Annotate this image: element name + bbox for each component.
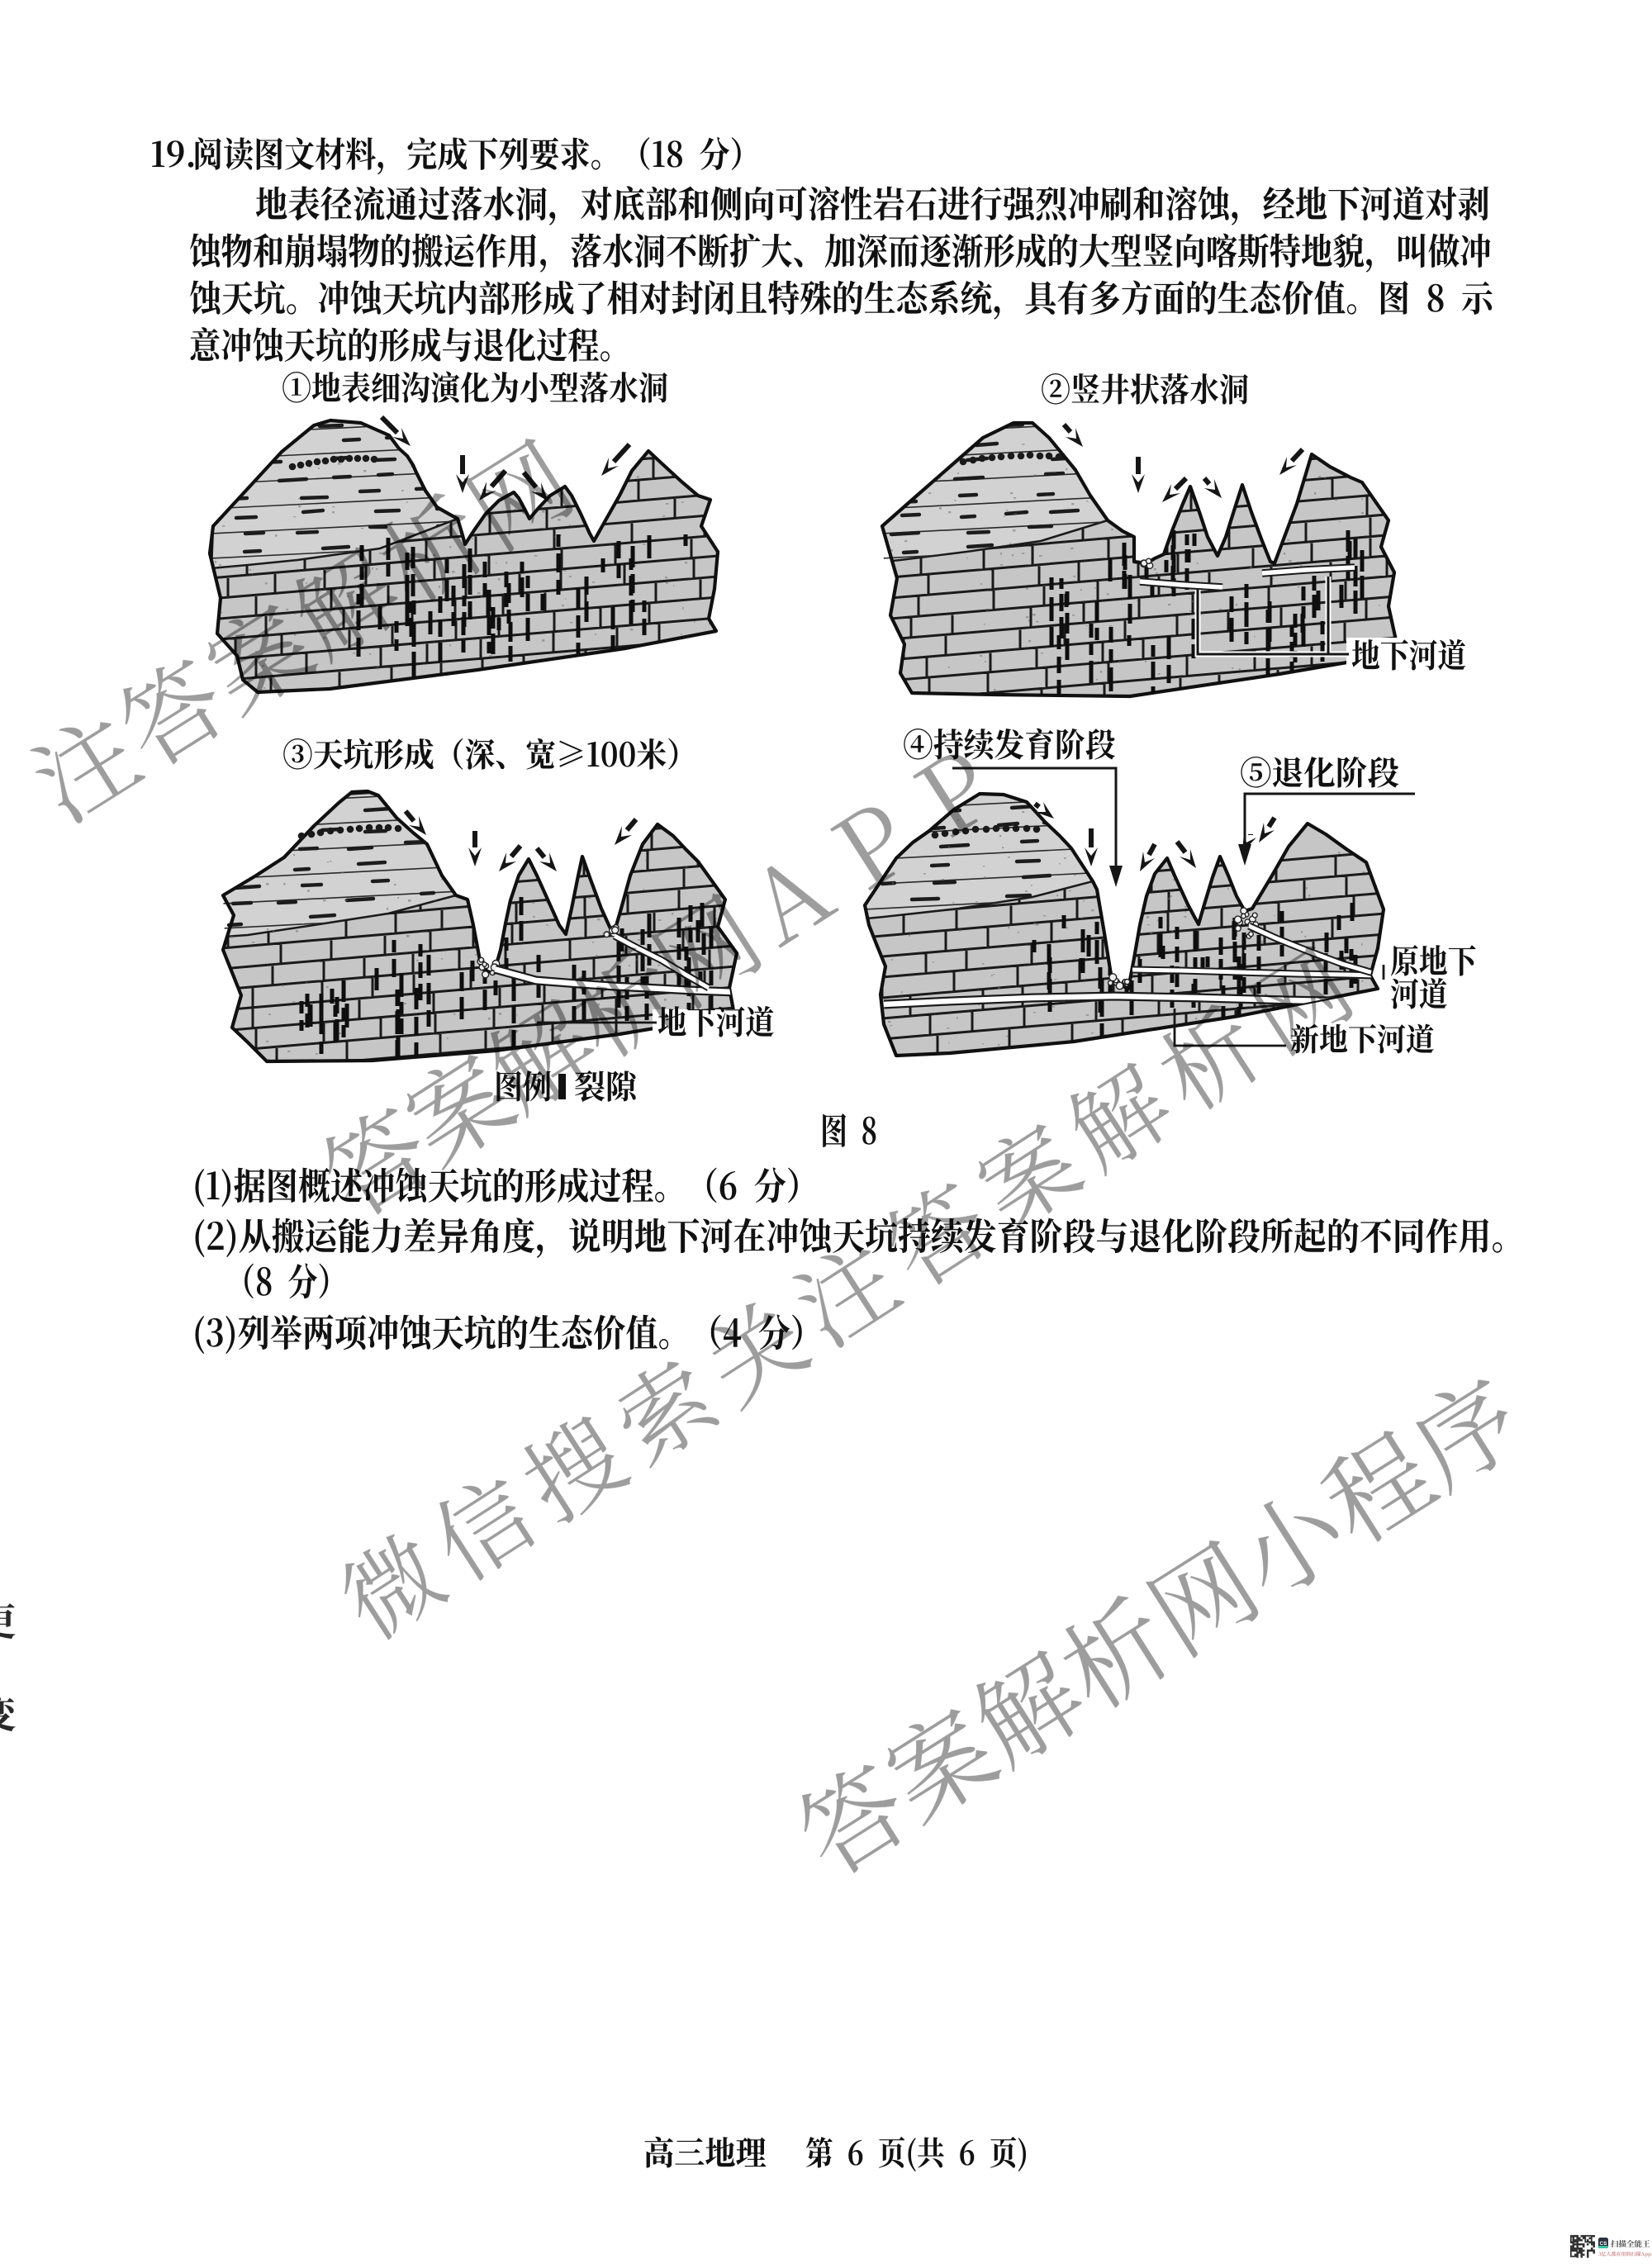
svg-text:CS: CS	[1599, 2241, 1607, 2247]
